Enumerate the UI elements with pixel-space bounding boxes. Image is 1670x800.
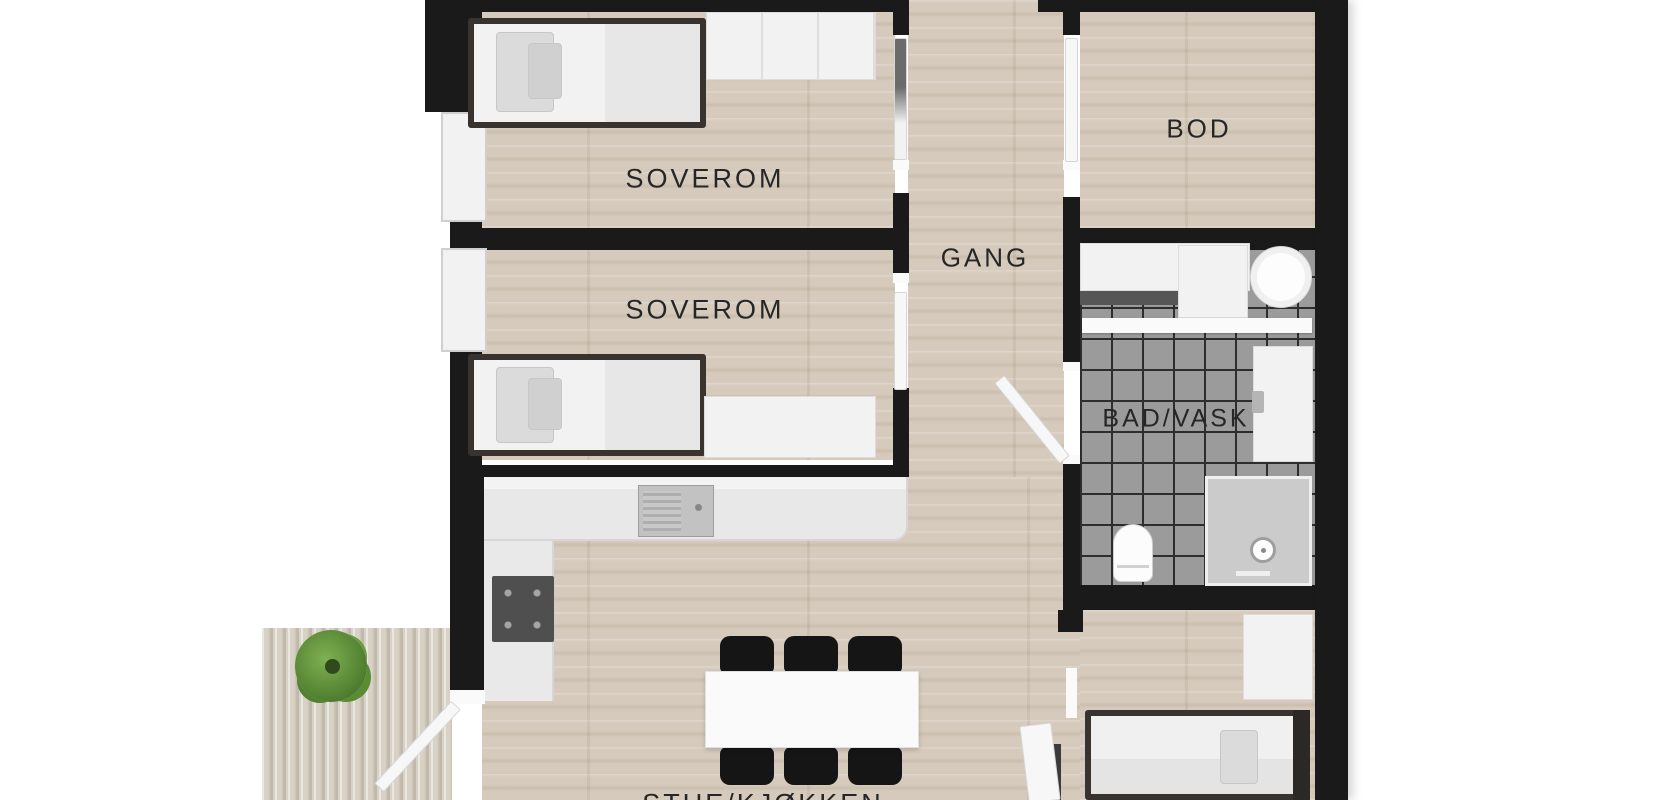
- door-frame-deck: [450, 690, 485, 704]
- sink-faucet-icon: [695, 504, 702, 511]
- pillow: [1220, 730, 1258, 784]
- wall-right: [1315, 0, 1348, 800]
- wardrobe-bedroom-1: [706, 12, 876, 80]
- door-frame: [893, 160, 909, 170]
- shower-head-icon: [1250, 537, 1276, 563]
- dresser-bedroom-3: [1243, 614, 1313, 700]
- wall-gang-right-a: [1063, 0, 1080, 35]
- room-label-bod: BOD: [1166, 114, 1231, 145]
- pillow: [528, 43, 562, 99]
- wall-top-right: [1038, 0, 1348, 12]
- wall-bath-bottom: [1063, 585, 1348, 610]
- dining-chair: [784, 636, 838, 674]
- room-label-soverom-1: SOVEROM: [625, 164, 784, 195]
- wall-gang-left-c: [893, 388, 909, 477]
- wall-bedroom3-stub: [1058, 610, 1083, 632]
- headboard-bedroom-3: [1293, 710, 1310, 800]
- dining-chair: [720, 747, 774, 785]
- room-label-gang: GANG: [941, 243, 1030, 274]
- pillow: [528, 378, 562, 430]
- wall-bedroom2-kitchen: [450, 465, 907, 477]
- bathroom-cabinet: [1178, 245, 1248, 318]
- wall-bath-left-upper: [1063, 250, 1080, 365]
- wall-gang-left-b: [893, 193, 909, 273]
- washing-machine: [1250, 246, 1312, 308]
- desk-bedroom-2: [704, 396, 876, 458]
- dining-chair: [720, 636, 774, 674]
- shower: [1205, 476, 1312, 586]
- dining-chair: [848, 636, 902, 674]
- dining-table: [705, 671, 919, 748]
- wall-left-kitchen: [450, 465, 485, 703]
- kitchen-sink: [638, 485, 714, 537]
- room-label-bad-vask: BAD/VASK: [1102, 405, 1249, 434]
- bed-bedroom-3: [1085, 710, 1310, 800]
- door-bedroom-2: [894, 292, 907, 390]
- dining-chair: [784, 747, 838, 785]
- room-label-soverom-2: SOVEROM: [625, 295, 784, 326]
- plant: [295, 630, 367, 702]
- wall-bedroom-partition: [450, 228, 896, 250]
- door-frame: [893, 273, 909, 283]
- shower-handle: [1236, 571, 1270, 576]
- floorplan: SOVEROM SOVEROM GANG BOD BAD/VASK STUE/K…: [0, 0, 1670, 800]
- door-jamb-bedroom-3: [1066, 668, 1077, 718]
- cooktop: [492, 576, 554, 642]
- window-bedroom-1: [441, 112, 487, 222]
- dining-chair: [848, 747, 902, 785]
- door-frame: [1063, 362, 1080, 371]
- door-bedroom-1: [894, 38, 907, 160]
- wall-bath-left-lower: [1063, 462, 1080, 592]
- bed-bedroom-2: [468, 354, 706, 456]
- wall-gang-left-a: [893, 0, 909, 35]
- vanity-faucet-icon: [1252, 391, 1264, 413]
- toilet-seat-line: [1117, 565, 1149, 568]
- vanity-sink: [1253, 346, 1313, 462]
- floor-gang: [908, 0, 1064, 480]
- door-bod: [1065, 38, 1078, 162]
- sink-drainboard: [643, 491, 681, 531]
- window-bedroom-2: [441, 248, 487, 352]
- room-label-stue-kjokken: STUE/KJØKKEN: [642, 789, 884, 800]
- bathroom-shelf: [1082, 318, 1312, 333]
- wall-top-left: [425, 0, 909, 12]
- toilet: [1113, 524, 1153, 582]
- bed-bedroom-1: [468, 18, 706, 128]
